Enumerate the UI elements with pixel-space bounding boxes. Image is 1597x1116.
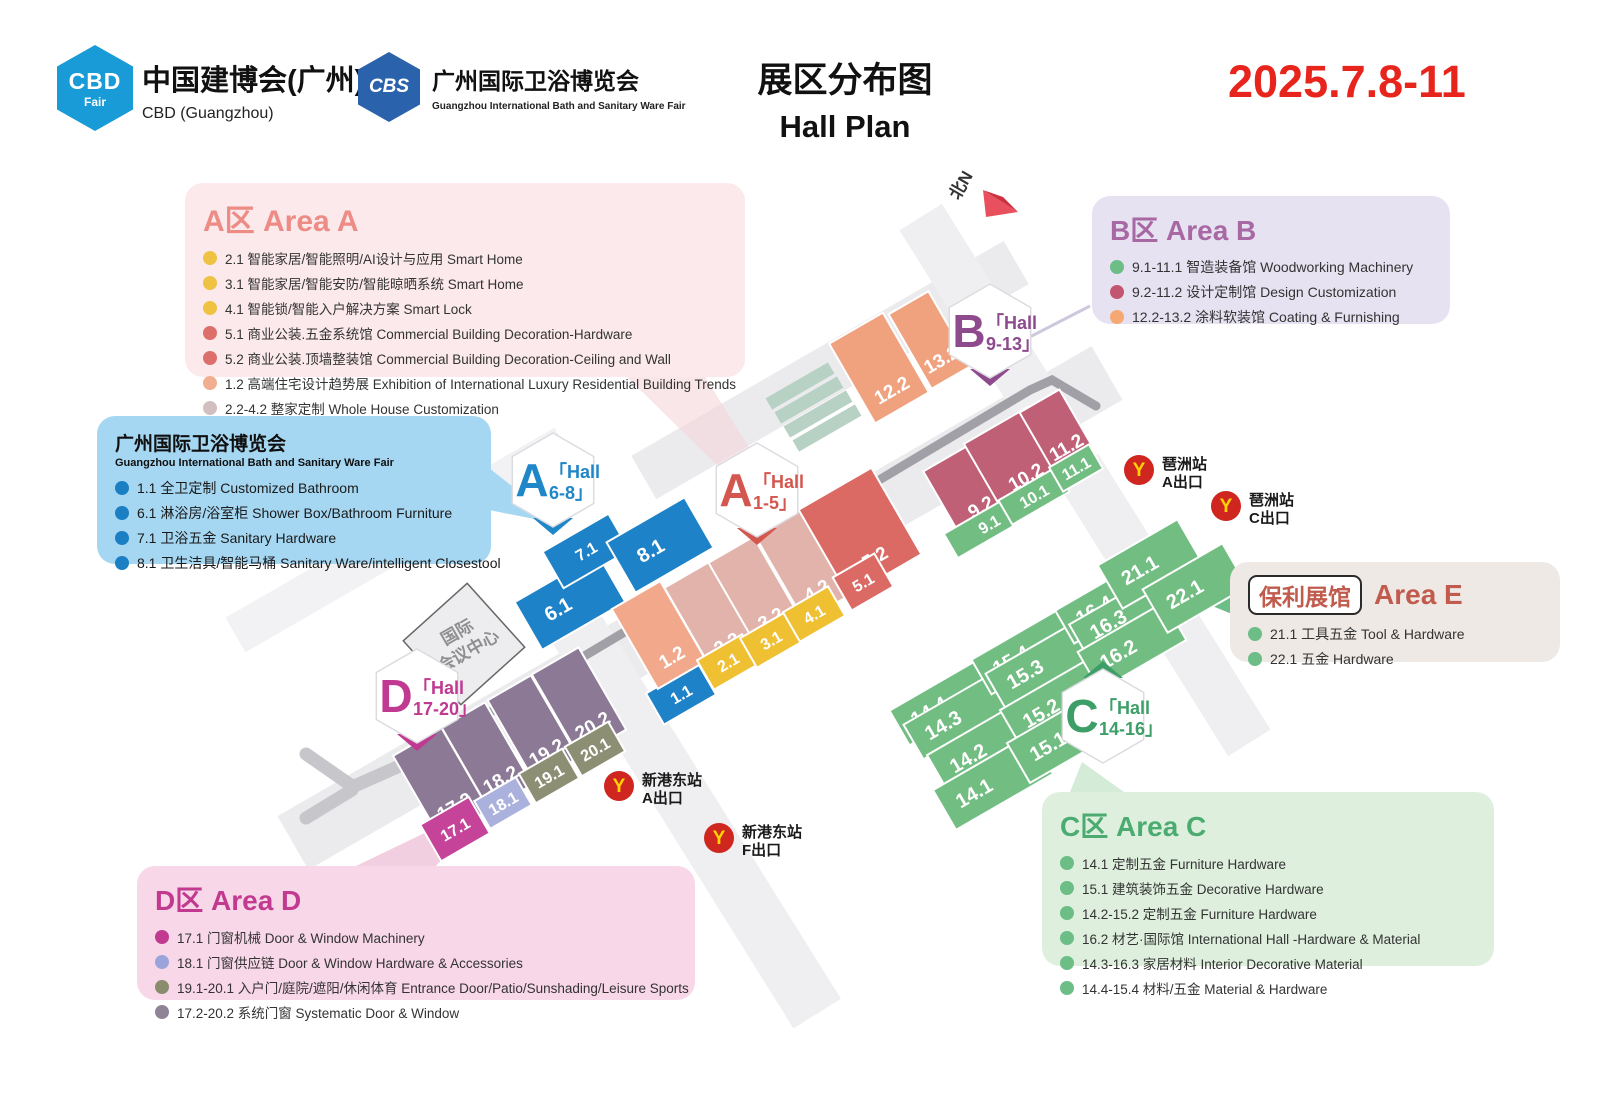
legend-item: 1.2 高端住宅设计趋势展 Exhibition of Internationa… bbox=[203, 373, 727, 393]
legend-area-d-title: D区 Area D bbox=[155, 879, 677, 919]
legend-area-d: D区 Area D 17.1 门窗机械 Door & Window Machin… bbox=[137, 866, 695, 1000]
legend-dot-icon bbox=[115, 506, 129, 520]
legend-item: 4.1 智能锁/智能入户解决方案 Smart Lock bbox=[203, 298, 727, 318]
badge-hall-range: 「Hall bbox=[1099, 697, 1150, 718]
legend-dot-icon bbox=[115, 556, 129, 570]
legend-item: 5.1 商业公装.五金系统馆 Commercial Building Decor… bbox=[203, 323, 727, 343]
legend-dot-icon bbox=[155, 980, 169, 994]
legend-item-label: 14.3-16.3 家居材料 Interior Decorative Mater… bbox=[1082, 953, 1363, 973]
poly-hall-badge: 保利展馆 bbox=[1248, 575, 1362, 615]
metro-station-琶洲站-A出口: Y琶洲站A出口 bbox=[1124, 455, 1207, 491]
svg-text:6-8」: 6-8」 bbox=[549, 483, 593, 503]
legend-item-label: 9.2-11.2 设计定制馆 Design Customization bbox=[1132, 282, 1396, 302]
station-exit: A出口 bbox=[1162, 473, 1203, 491]
station-exit: A出口 bbox=[642, 789, 683, 807]
cbd-title-cn: 中国建博会(广州) bbox=[142, 57, 364, 99]
badge-hall-range: 「Hall bbox=[753, 471, 804, 492]
legend-area-b-title: B区 Area B bbox=[1110, 209, 1432, 249]
legend-area-b: B区 Area B 9.1-11.1 智造装备馆 Woodworking Mac… bbox=[1092, 196, 1450, 324]
svg-text:Y: Y bbox=[1133, 460, 1146, 481]
legend-item-label: 12.2-13.2 涂料软装馆 Coating & Furnishing bbox=[1132, 307, 1400, 327]
legend-area-a-items: 2.1 智能家居/智能照明/AI设计与应用 Smart Home 3.1 智能家… bbox=[203, 248, 727, 418]
legend-item: 18.1 门窗供应链 Door & Window Hardware & Acce… bbox=[155, 952, 677, 972]
legend-item: 17.2-20.2 系统门窗 Systematic Door & Window bbox=[155, 1002, 677, 1022]
legend-item-label: 14.2-15.2 定制五金 Furniture Hardware bbox=[1082, 903, 1317, 923]
legend-area-e: 保利展馆 Area E 21.1 工具五金 Tool & Hardware 22… bbox=[1230, 562, 1560, 662]
badge-letter: B bbox=[952, 305, 985, 357]
legend-item-label: 8.1 卫生洁具/智能马桶 Sanitary Ware/intelligent … bbox=[137, 553, 501, 573]
legend-item-label: 19.1-20.1 入户门/庭院/遮阳/休闲体育 Entrance Door/P… bbox=[177, 977, 689, 997]
legend-item-label: 2.1 智能家居/智能照明/AI设计与应用 Smart Home bbox=[225, 248, 523, 268]
legend-dot-icon bbox=[1060, 981, 1074, 995]
legend-bath-subtitle: Guangzhou International Bath and Sanitar… bbox=[115, 457, 473, 469]
legend-area-e-title: 保利展馆 Area E bbox=[1248, 575, 1542, 615]
station-name: 琶洲站 bbox=[1162, 455, 1207, 473]
legend-item: 9.1-11.1 智造装备馆 Woodworking Machinery bbox=[1110, 257, 1432, 277]
legend-dot-icon bbox=[115, 481, 129, 495]
legend-item: 12.2-13.2 涂料软装馆 Coating & Furnishing bbox=[1110, 307, 1432, 327]
legend-bath-items: 1.1 全卫定制 Customized Bathroom 6.1 淋浴房/浴室柜… bbox=[115, 478, 473, 573]
legend-bath-fair: 广州国际卫浴博览会 Guangzhou International Bath a… bbox=[97, 416, 491, 564]
station-name: 新港东站 bbox=[642, 771, 702, 789]
cbd-logo-fair: Fair bbox=[84, 95, 106, 109]
legend-item: 14.4-15.4 材料/五金 Material & Hardware bbox=[1060, 978, 1476, 998]
legend-dot-icon bbox=[115, 531, 129, 545]
legend-item: 5.2 商业公装.顶墙整装馆 Commercial Building Decor… bbox=[203, 348, 727, 368]
legend-item-label: 5.1 商业公装.五金系统馆 Commercial Building Decor… bbox=[225, 323, 632, 343]
legend-item: 1.1 全卫定制 Customized Bathroom bbox=[115, 478, 473, 498]
metro-station-琶洲站-C出口: Y琶洲站C出口 bbox=[1211, 491, 1294, 527]
legend-dot-icon bbox=[203, 251, 217, 265]
legend-area-d-items: 17.1 门窗机械 Door & Window Machinery 18.1 门… bbox=[155, 927, 677, 1022]
legend-item: 9.2-11.2 设计定制馆 Design Customization bbox=[1110, 282, 1432, 302]
station-name: 新港东站 bbox=[742, 823, 802, 841]
legend-item: 15.1 建筑装饰五金 Decorative Hardware bbox=[1060, 878, 1476, 898]
legend-item: 14.3-16.3 家居材料 Interior Decorative Mater… bbox=[1060, 953, 1476, 973]
legend-area-e-name: Area E bbox=[1374, 579, 1463, 611]
legend-item-label: 22.1 五金 Hardware bbox=[1270, 649, 1394, 669]
station-exit: F出口 bbox=[742, 841, 781, 859]
legend-item-label: 7.1 卫浴五金 Sanitary Hardware bbox=[137, 528, 336, 548]
legend-item-label: 14.4-15.4 材料/五金 Material & Hardware bbox=[1082, 978, 1327, 998]
legend-dot-icon bbox=[203, 376, 217, 390]
north-arrow: 北N bbox=[946, 168, 1018, 217]
cbd-fair-title: 中国建博会(广州) CBD (Guangzhou) bbox=[142, 57, 364, 123]
legend-dot-icon bbox=[1248, 627, 1262, 641]
badge-letter: C bbox=[1065, 690, 1098, 742]
north-label: 北N bbox=[946, 168, 977, 203]
legend-dot-icon bbox=[1110, 310, 1124, 324]
badge-hall-range: 「Hall bbox=[986, 312, 1037, 333]
page-title: 展区分布图 Hall Plan bbox=[700, 52, 990, 145]
legend-item-label: 1.1 全卫定制 Customized Bathroom bbox=[137, 478, 359, 498]
legend-item-label: 5.2 商业公装.顶墙整装馆 Commercial Building Decor… bbox=[225, 348, 671, 368]
legend-item: 6.1 淋浴房/浴室柜 Shower Box/Bathroom Furnitur… bbox=[115, 503, 473, 523]
legend-item: 19.1-20.1 入户门/庭院/遮阳/休闲体育 Entrance Door/P… bbox=[155, 977, 677, 997]
legend-area-a: A区 Area A 2.1 智能家居/智能照明/AI设计与应用 Smart Ho… bbox=[185, 183, 745, 377]
cbs-fair-title: 广州国际卫浴博览会 Guangzhou International Bath a… bbox=[432, 62, 686, 112]
badge-letter: A bbox=[515, 454, 548, 506]
svg-text:9-13」: 9-13」 bbox=[986, 334, 1040, 354]
legend-area-e-items: 21.1 工具五金 Tool & Hardware 22.1 五金 Hardwa… bbox=[1248, 624, 1542, 669]
svg-text:14-16」: 14-16」 bbox=[1099, 719, 1163, 739]
legend-item: 2.2-4.2 整家定制 Whole House Customization bbox=[203, 398, 727, 418]
svg-text:Y: Y bbox=[713, 828, 726, 849]
svg-text:1-5」: 1-5」 bbox=[753, 493, 797, 513]
fair-date: 2025.7.8-11 bbox=[1228, 56, 1466, 108]
badge-letter: D bbox=[379, 670, 412, 722]
legend-item: 3.1 智能家居/智能安防/智能晾晒系统 Smart Home bbox=[203, 273, 727, 293]
legend-item-label: 14.1 定制五金 Furniture Hardware bbox=[1082, 853, 1286, 873]
legend-dot-icon bbox=[203, 301, 217, 315]
legend-dot-icon bbox=[203, 351, 217, 365]
hall-plan-poster: 6.17.18.11.11.22.23.24.25.22.13.14.15.11… bbox=[0, 0, 1597, 1116]
cbs-logo-text: CBS bbox=[369, 76, 409, 98]
legend-item: 7.1 卫浴五金 Sanitary Hardware bbox=[115, 528, 473, 548]
legend-item-label: 1.2 高端住宅设计趋势展 Exhibition of Internationa… bbox=[225, 373, 736, 393]
legend-item-label: 18.1 门窗供应链 Door & Window Hardware & Acce… bbox=[177, 952, 523, 972]
legend-item-label: 6.1 淋浴房/浴室柜 Shower Box/Bathroom Furnitur… bbox=[137, 503, 452, 523]
legend-dot-icon bbox=[1060, 856, 1074, 870]
svg-text:Y: Y bbox=[1220, 496, 1233, 517]
svg-text:17-20」: 17-20」 bbox=[413, 699, 477, 719]
cbd-title-en: CBD (Guangzhou) bbox=[142, 105, 364, 123]
legend-dot-icon bbox=[155, 1005, 169, 1019]
badge-letter: A bbox=[719, 464, 752, 516]
legend-dot-icon bbox=[1060, 881, 1074, 895]
legend-dot-icon bbox=[1060, 956, 1074, 970]
legend-item-label: 17.2-20.2 系统门窗 Systematic Door & Window bbox=[177, 1002, 459, 1022]
legend-area-c: C区 Area C 14.1 定制五金 Furniture Hardware 1… bbox=[1042, 792, 1494, 966]
legend-item-label: 16.2 材艺·国际馆 International Hall -Hardware… bbox=[1082, 928, 1420, 948]
legend-item: 8.1 卫生洁具/智能马桶 Sanitary Ware/intelligent … bbox=[115, 553, 473, 573]
legend-dot-icon bbox=[155, 955, 169, 969]
legend-item-label: 2.2-4.2 整家定制 Whole House Customization bbox=[225, 398, 499, 418]
legend-dot-icon bbox=[1060, 931, 1074, 945]
legend-item-label: 17.1 门窗机械 Door & Window Machinery bbox=[177, 927, 425, 947]
legend-item: 21.1 工具五金 Tool & Hardware bbox=[1248, 624, 1542, 644]
legend-item: 2.1 智能家居/智能照明/AI设计与应用 Smart Home bbox=[203, 248, 727, 268]
legend-item: 22.1 五金 Hardware bbox=[1248, 649, 1542, 669]
station-name: 琶洲站 bbox=[1249, 491, 1294, 509]
legend-area-b-items: 9.1-11.1 智造装备馆 Woodworking Machinery 9.2… bbox=[1110, 257, 1432, 327]
legend-dot-icon bbox=[203, 276, 217, 290]
legend-item: 14.2-15.2 定制五金 Furniture Hardware bbox=[1060, 903, 1476, 923]
station-exit: C出口 bbox=[1249, 509, 1290, 527]
cbd-logo-text: CBD bbox=[69, 68, 122, 95]
legend-item-label: 4.1 智能锁/智能入户解决方案 Smart Lock bbox=[225, 298, 472, 318]
legend-dot-icon bbox=[1248, 652, 1262, 666]
legend-bath-title: 广州国际卫浴博览会 bbox=[115, 429, 473, 456]
legend-area-c-items: 14.1 定制五金 Furniture Hardware 15.1 建筑装饰五金… bbox=[1060, 853, 1476, 998]
legend-item-label: 9.1-11.1 智造装备馆 Woodworking Machinery bbox=[1132, 257, 1413, 277]
badge-hall-range: 「Hall bbox=[549, 461, 600, 482]
legend-dot-icon bbox=[1110, 285, 1124, 299]
legend-area-c-title: C区 Area C bbox=[1060, 805, 1476, 845]
badge-hall-range: 「Hall bbox=[413, 677, 464, 698]
legend-item-label: 21.1 工具五金 Tool & Hardware bbox=[1270, 624, 1465, 644]
legend-item: 14.1 定制五金 Furniture Hardware bbox=[1060, 853, 1476, 873]
legend-dot-icon bbox=[203, 326, 217, 340]
svg-text:Y: Y bbox=[613, 776, 626, 797]
page-title-en: Hall Plan bbox=[700, 109, 990, 145]
legend-item-label: 15.1 建筑装饰五金 Decorative Hardware bbox=[1082, 878, 1324, 898]
legend-dot-icon bbox=[203, 401, 217, 415]
legend-dot-icon bbox=[1060, 906, 1074, 920]
cbs-title-en: Guangzhou International Bath and Sanitar… bbox=[432, 101, 686, 112]
road-fork bbox=[306, 754, 352, 786]
cbs-title-cn: 广州国际卫浴博览会 bbox=[432, 62, 686, 96]
legend-item-label: 3.1 智能家居/智能安防/智能晾晒系统 Smart Home bbox=[225, 273, 524, 293]
legend-area-a-title: A区 Area A bbox=[203, 196, 727, 240]
legend-item: 16.2 材艺·国际馆 International Hall -Hardware… bbox=[1060, 928, 1476, 948]
legend-item: 17.1 门窗机械 Door & Window Machinery bbox=[155, 927, 677, 947]
legend-dot-icon bbox=[1110, 260, 1124, 274]
hall-badge-A-6-8: A「Hall6-8」 bbox=[512, 433, 600, 535]
page-title-cn: 展区分布图 bbox=[700, 52, 990, 103]
legend-dot-icon bbox=[155, 930, 169, 944]
